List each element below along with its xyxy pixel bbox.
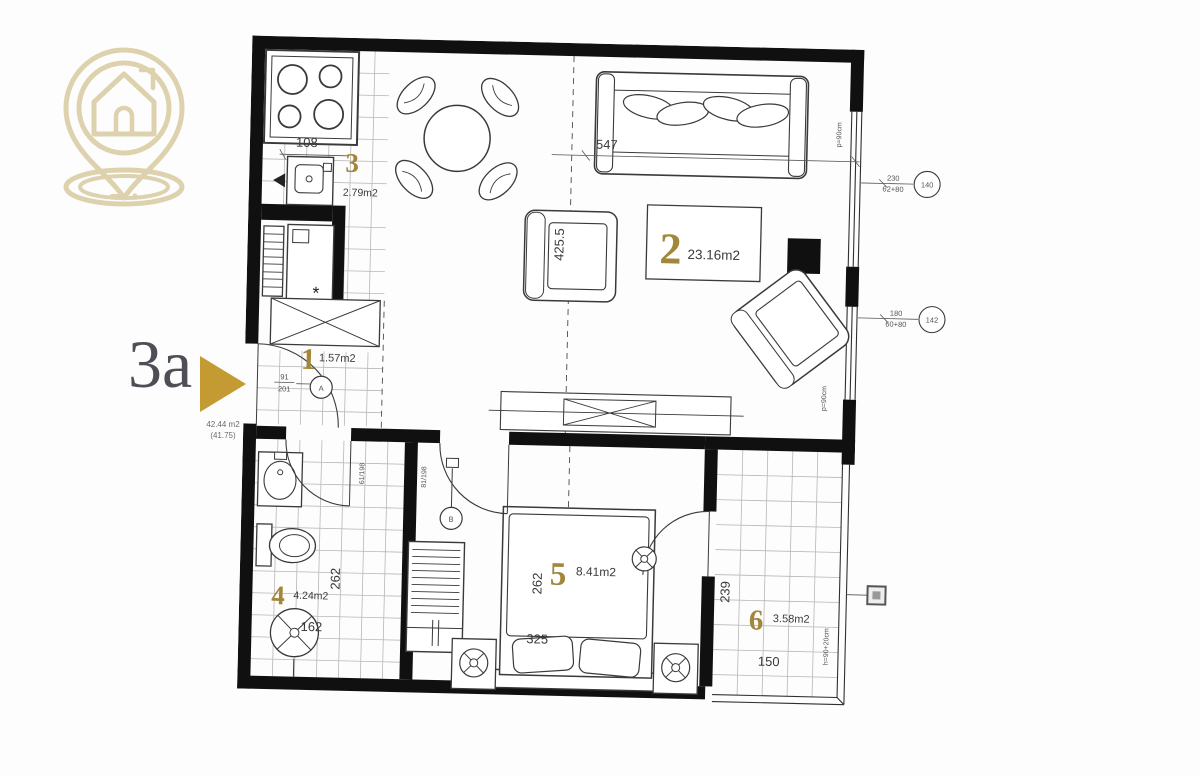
brand-logo: [44, 38, 206, 221]
armchair-center: [523, 210, 617, 302]
room-2-number: 2: [659, 224, 682, 274]
dim-108: 108: [296, 135, 318, 151]
radiator: [262, 226, 284, 296]
unit-label: 3a: [128, 330, 192, 398]
arrow-icon: [273, 173, 285, 187]
door-a-tag: A: [319, 384, 324, 393]
toilet: [256, 524, 316, 567]
dim-239: 239: [717, 581, 733, 603]
balcony-marker: [846, 586, 885, 605]
sofa: [594, 72, 808, 179]
dim-162: 162: [300, 619, 322, 635]
room-5-number: 5: [549, 557, 566, 593]
dim-425-5: 425.5: [551, 228, 567, 261]
bath-door-size: 61/198: [359, 463, 367, 485]
room-1-number: 1: [300, 343, 316, 376]
bed: [493, 506, 659, 691]
armchair-right: [728, 265, 854, 391]
window1-tag-value: 140: [921, 180, 934, 189]
window-right-top: [848, 112, 862, 267]
wardrobe: [406, 541, 465, 652]
balcony-rail-height: h=90+20cm: [823, 628, 831, 665]
room-5-area: 8.41m2: [576, 564, 617, 579]
window-right-bottom: [845, 307, 857, 400]
unit-arrow-icon: [200, 356, 246, 417]
window1-dim-top: 230: [887, 174, 900, 183]
dining-table: [388, 69, 526, 207]
living-room-label: 2 23.16m2: [646, 205, 762, 282]
door-b-tag: B: [449, 515, 454, 524]
window2-dim-bottom: 60+80: [885, 320, 906, 329]
window1-dim-bottom: 62+80: [882, 184, 903, 193]
kitchen-sink: [273, 156, 334, 205]
parapet-side-label: p=90cm: [821, 386, 829, 411]
dim-547: 547: [596, 137, 618, 153]
house-location-pin-icon: [44, 38, 206, 216]
room-6-number: 6: [748, 604, 763, 636]
room-4-area: 4.24m2: [293, 590, 328, 603]
parapet-top-label: p=90cm: [836, 122, 844, 147]
stove: [264, 50, 359, 145]
room-3-number: 3: [345, 148, 359, 178]
window-tag-2: 180 60+80 142: [858, 305, 946, 333]
door-a-size-bottom: 201: [278, 384, 291, 393]
dim-bath-262: 262: [327, 568, 343, 590]
nightstand-right: [653, 643, 698, 694]
tv-unit: [488, 391, 744, 435]
room-4-number: 4: [271, 580, 285, 610]
hall-closet: [270, 298, 380, 347]
dim-bed-262: 262: [529, 573, 545, 595]
dim-325: 325: [526, 631, 548, 647]
entry-dashed-divider: [381, 301, 384, 429]
room-2-area: 23.16m2: [687, 247, 740, 263]
nightstand-left: [451, 638, 496, 689]
door-a-size-top: 91: [280, 372, 289, 381]
dim-150: 150: [758, 654, 780, 670]
fridge: *: [286, 224, 334, 303]
window-tag-1: 230 62+80 140: [861, 170, 941, 198]
floor-plan: * A 91 201 547 42: [237, 36, 955, 729]
bedroom-door: B 81/198: [420, 443, 509, 531]
window2-dim-top: 180: [890, 309, 903, 318]
room-6-area: 3.58m2: [773, 613, 810, 626]
window2-tag-value: 142: [926, 315, 939, 324]
door-b-size: 81/198: [421, 466, 429, 488]
room-1-area: 1.57m2: [319, 352, 356, 365]
room-3-area: 2.79m2: [343, 187, 378, 200]
washbasin: [257, 452, 302, 507]
